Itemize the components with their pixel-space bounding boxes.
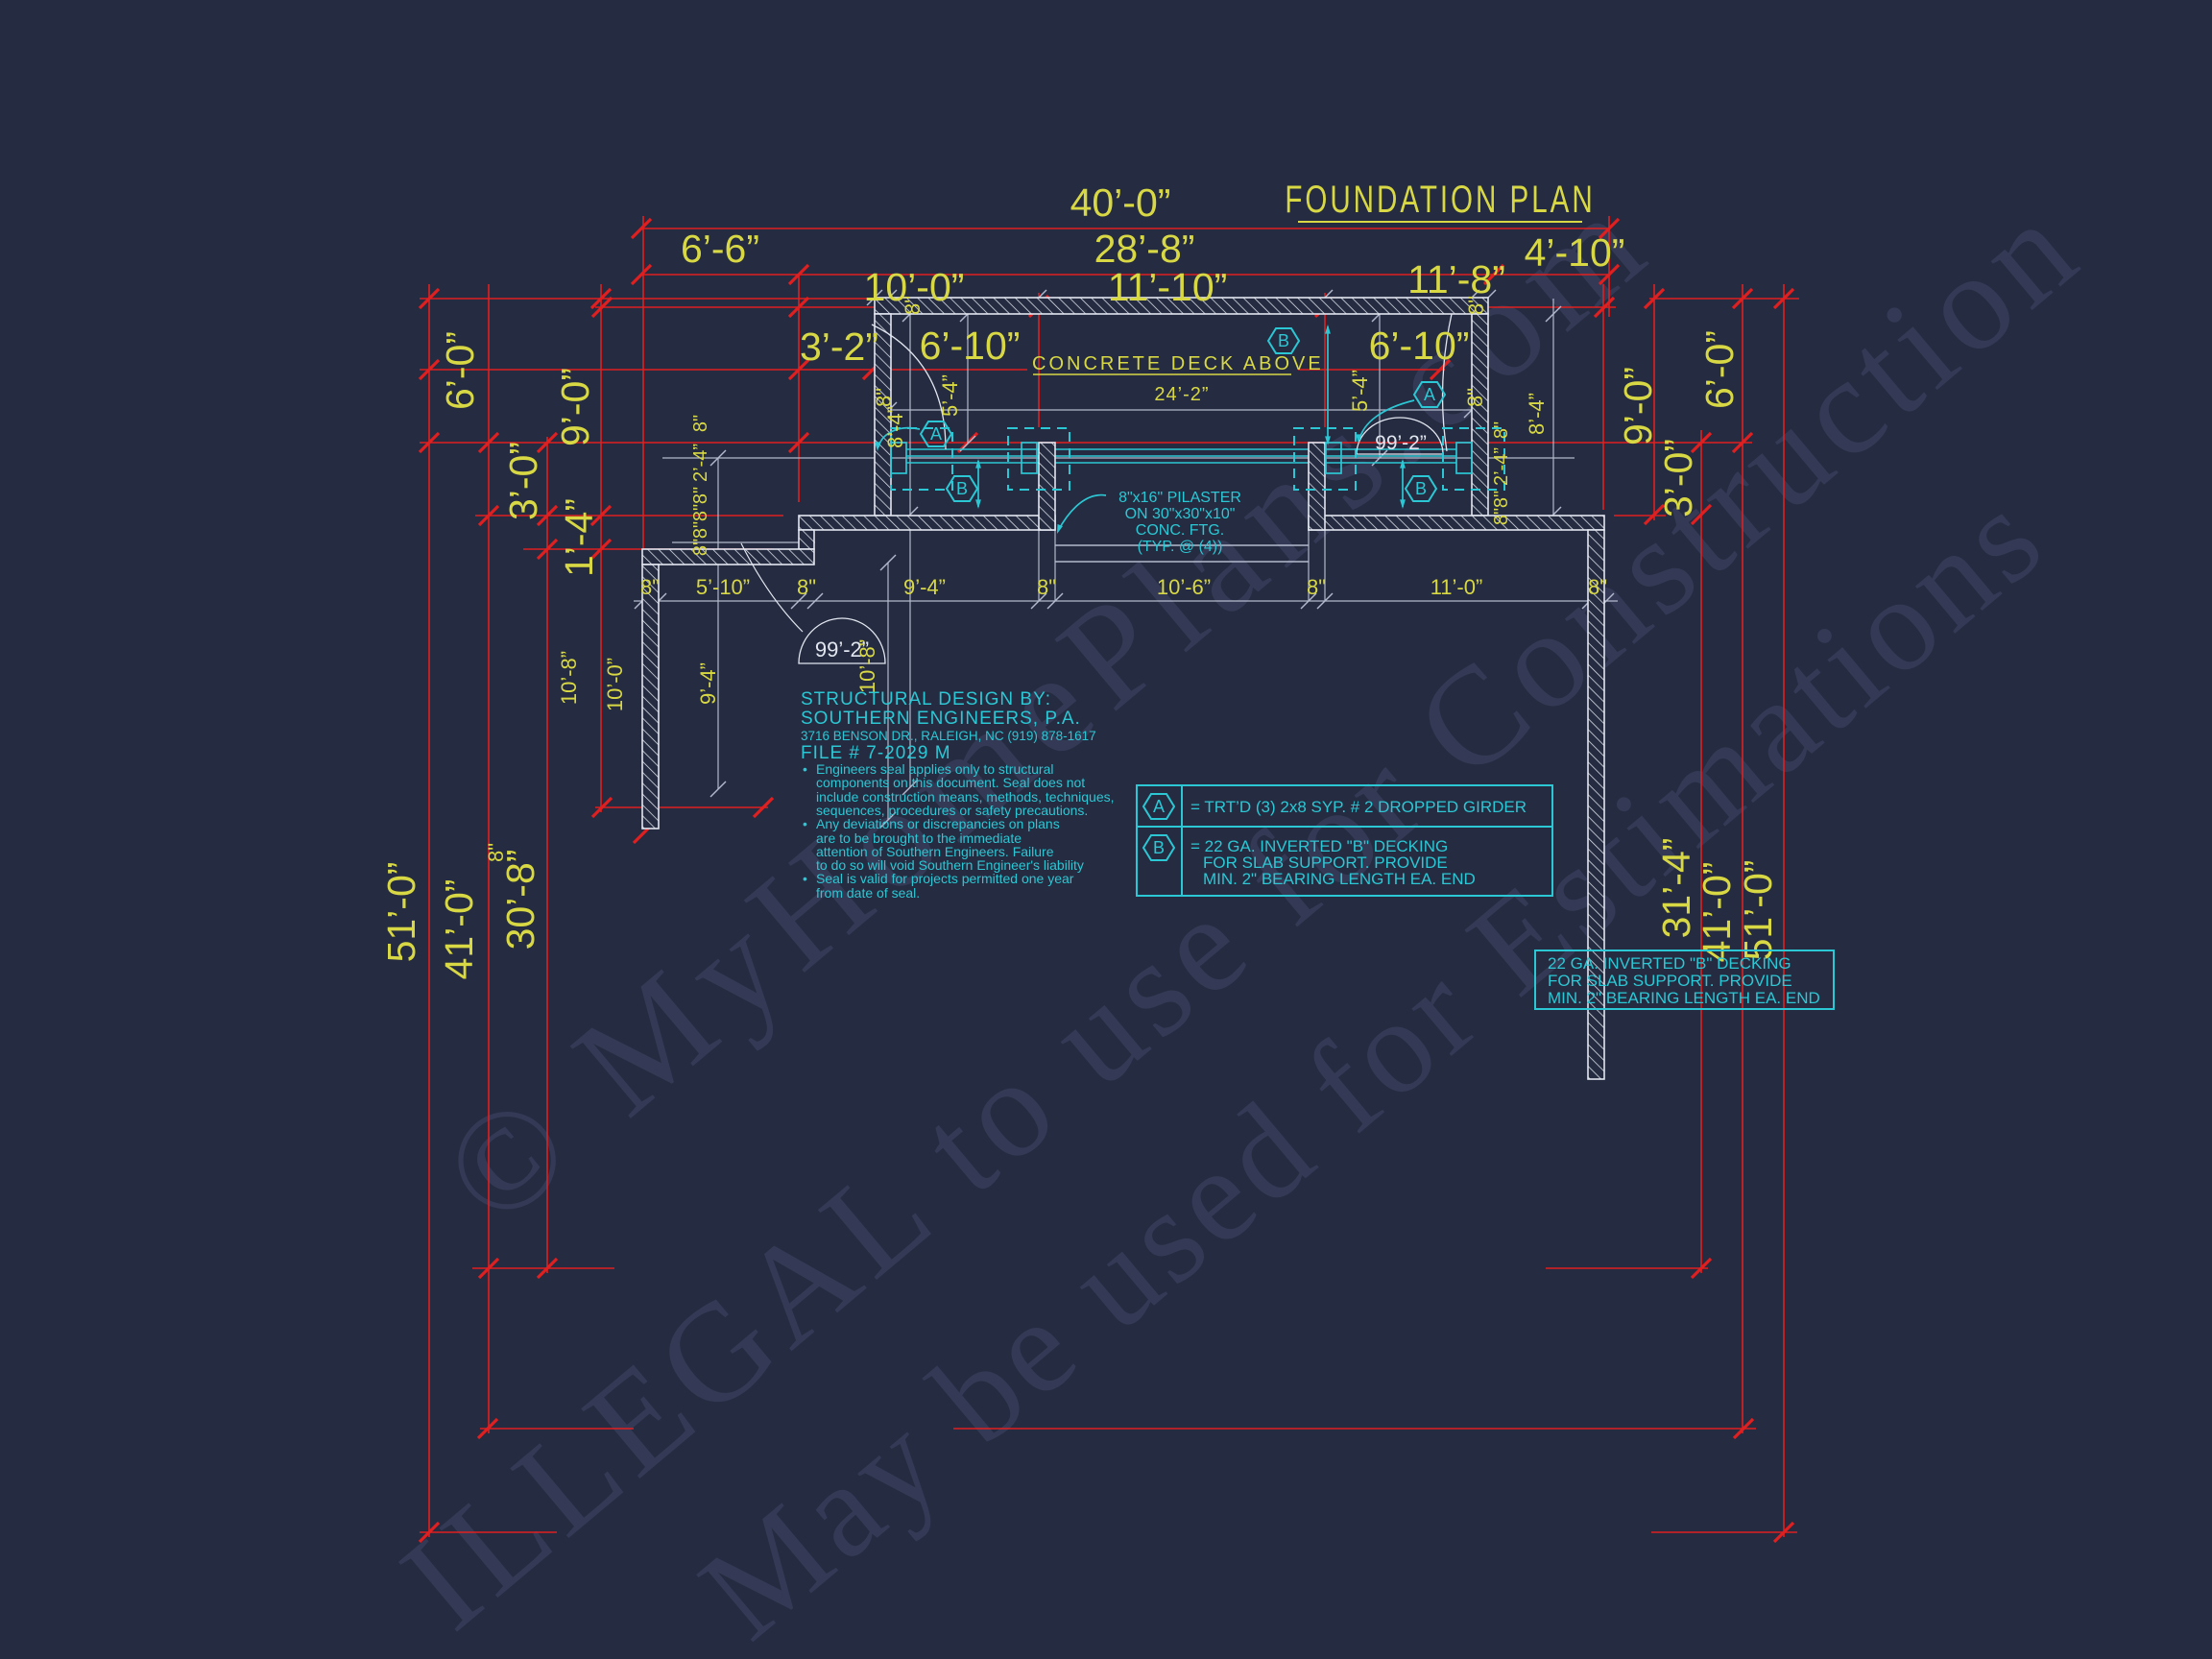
svg-text:8": 8" [690,504,711,521]
svg-text:10’-0”: 10’-0” [603,658,627,711]
svg-text:8": 8" [690,415,711,432]
svg-text:24’-2”: 24’-2” [1154,384,1209,405]
svg-text:9’-4”: 9’-4” [903,575,946,599]
svg-text:(TYP. @ (4)): (TYP. @ (4)) [1138,539,1223,555]
svg-text:41’-0”: 41’-0” [437,879,481,980]
svg-text:•: • [803,816,807,831]
svg-text:8": 8" [1588,575,1607,599]
svg-text:8": 8" [640,575,660,599]
svg-text:9’-0”: 9’-0” [1616,367,1660,445]
svg-text:9’-0”: 9’-0” [553,368,597,446]
svg-text:10’-8”: 10’-8” [855,639,879,693]
svg-text:51’-0”: 51’-0” [1736,860,1780,961]
svg-text:CONC. FTG.: CONC. FTG. [1136,522,1224,539]
svg-text:31’-4”: 31’-4” [1654,838,1698,939]
svg-text:A: A [1424,385,1435,404]
svg-text:8": 8" [690,487,711,504]
svg-text:8": 8" [1464,296,1488,315]
svg-text:B: B [1153,838,1165,857]
svg-text:B: B [956,479,968,498]
svg-text:Seal is valid for projects per: Seal is valid for projects permitted one… [816,871,1074,886]
svg-text:8": 8" [872,388,896,407]
svg-text:5’-10”: 5’-10” [696,575,750,599]
svg-text:from date of seal.: from date of seal. [816,885,920,901]
svg-text:11’-0”: 11’-0” [1431,575,1483,599]
svg-text:3’-0”: 3’-0” [1656,439,1700,517]
svg-text:3’-2”: 3’-2” [800,325,878,369]
svg-text:2’-4”: 2’-4” [1491,447,1512,486]
svg-text:5’-4”: 5’-4” [1348,370,1372,412]
svg-text:2’-4”: 2’-4” [690,444,711,482]
svg-text:99’-2”: 99’-2” [1375,432,1427,454]
svg-text:6’-0”: 6’-0” [438,331,482,410]
svg-text:FOR SLAB SUPPORT. PROVIDE: FOR SLAB SUPPORT. PROVIDE [1548,972,1792,990]
svg-text:8": 8" [797,575,816,599]
svg-text:3716 BENSON DR., RALEIGH, NC (: 3716 BENSON DR., RALEIGH, NC (919) 878-1… [801,729,1096,743]
svg-text:FOUNDATION PLAN: FOUNDATION PLAN [1285,179,1595,221]
svg-text:8": 8" [690,539,711,556]
svg-text:components on this document. S: components on this document. Seal does n… [816,775,1085,790]
svg-text:1’-4”: 1’-4” [557,498,601,577]
svg-text:3’-0”: 3’-0” [501,442,545,520]
svg-text:8": 8" [1037,575,1056,599]
svg-text:SOUTHERN ENGINEERS, P.A.: SOUTHERN ENGINEERS, P.A. [801,709,1081,729]
svg-text:= TRT’D (3) 2x8 SYP. # 2 DROP: = TRT’D (3) 2x8 SYP. # 2 DROPPED GIRDER [1190,798,1527,816]
svg-text:FILE # 7-2029 M: FILE # 7-2029 M [801,743,951,763]
svg-text:22 GA. INVERTED "B" DECKING: 22 GA. INVERTED "B" DECKING [1548,954,1791,973]
svg-text:8": 8" [1491,421,1512,439]
svg-text:8": 8" [1491,508,1512,525]
svg-text:40’-0”: 40’-0” [1070,180,1171,225]
svg-text:8": 8" [901,296,925,315]
svg-text:8"x16" PILASTER: 8"x16" PILASTER [1118,490,1241,506]
svg-text:6’-6”: 6’-6” [681,227,759,271]
svg-text:MIN. 2" BEARING LENGTH EA. END: MIN. 2" BEARING LENGTH EA. END [1548,989,1820,1007]
svg-text:11’-10”: 11’-10” [1108,265,1228,309]
svg-text:10’-8”: 10’-8” [557,651,581,705]
svg-text:8’-4”: 8’-4” [1525,393,1549,435]
svg-text:8": 8" [1307,575,1326,599]
svg-text:10’-6”: 10’-6” [1157,575,1211,599]
svg-text:5’-4”: 5’-4” [938,374,962,417]
svg-text:6’-10”: 6’-10” [920,324,1021,368]
svg-text:8": 8" [1463,388,1487,407]
svg-text:A: A [1153,797,1165,816]
svg-text:8": 8" [1491,491,1512,508]
svg-text:8’-4”: 8’-4” [883,406,907,448]
svg-text:6’-10”: 6’-10” [1369,324,1470,368]
svg-text:CONCRETE DECK ABOVE: CONCRETE DECK ABOVE [1032,353,1324,374]
svg-text:STRUCTURAL DESIGN BY:: STRUCTURAL DESIGN BY: [801,689,1051,709]
svg-text:•: • [803,761,807,777]
svg-text:B: B [1278,331,1289,350]
svg-text:8": 8" [690,521,711,539]
svg-text:6’-0”: 6’-0” [1697,330,1742,409]
svg-text:51’-0”: 51’-0” [379,862,423,963]
svg-text:4’-10”: 4’-10” [1525,230,1625,275]
svg-text:30’-8”: 30’-8” [498,850,542,950]
svg-text:Any deviations or discrepancie: Any deviations or discrepancies on plans [816,816,1060,831]
svg-text:9’-4”: 9’-4” [696,662,720,705]
svg-text:MIN. 2" BEARING LENGTH EA. END: MIN. 2" BEARING LENGTH EA. END [1203,870,1476,888]
svg-text:B: B [1415,479,1427,498]
svg-text:8": 8" [484,843,508,862]
svg-text:•: • [803,871,807,886]
svg-text:ON 30"x30"x10": ON 30"x30"x10" [1125,506,1236,522]
svg-text:11’-8”: 11’-8” [1407,257,1505,301]
svg-text:41’-0”: 41’-0” [1695,862,1739,963]
svg-text:A: A [930,424,942,444]
